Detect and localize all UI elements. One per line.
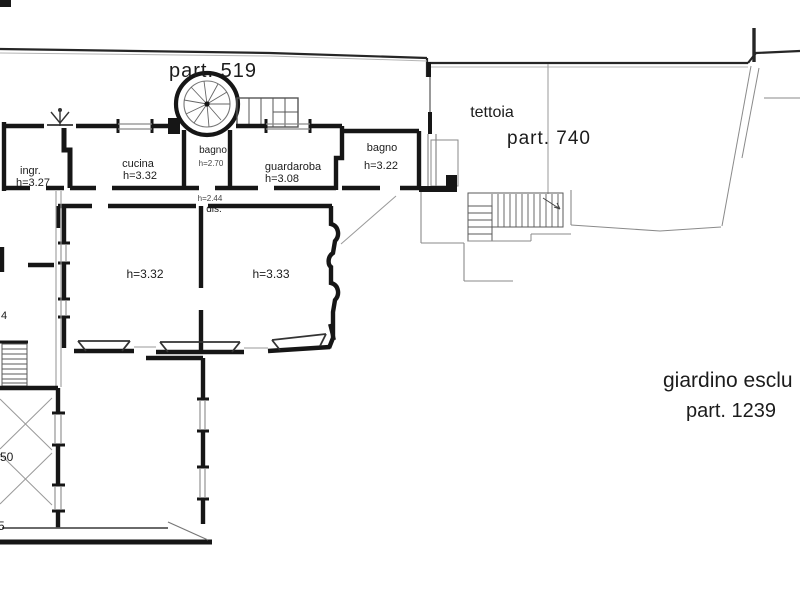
label-cucina: cucina — [122, 158, 155, 170]
apartment-walls-top — [2, 119, 457, 191]
label-ingresso: ingr. — [20, 165, 41, 177]
section-line — [341, 196, 396, 244]
label-parcel-1239: part. 1239 — [686, 400, 776, 422]
label-disimpegno: dis. — [206, 204, 222, 215]
label-parcel-519: part. 519 — [169, 60, 257, 82]
label-guardaroba: guardaroba — [265, 161, 322, 173]
parcel-boundary-line — [0, 28, 800, 77]
garden-boundary — [421, 189, 721, 281]
label-giardino: giardino esclu — [663, 369, 793, 392]
label-edge-5: 5 — [0, 519, 5, 533]
label-ingresso-h: h=3.27 — [16, 177, 50, 189]
label-bagno-scala-h: h=2.70 — [199, 159, 224, 168]
label-guardaroba-h: h=3.08 — [265, 173, 299, 185]
label-cucina-h: h=3.32 — [123, 170, 157, 182]
label-disimpegno-h: h=2.44 — [198, 194, 223, 203]
floor-plan-canvas: part. 519 tettoia part. 740 ingr. h=3.27… — [0, 0, 800, 600]
label-bagno-scala: bagno — [199, 145, 227, 156]
floor-plan-drawing: part. 519 tettoia part. 740 ingr. h=3.27… — [0, 0, 800, 600]
label-camera2-h: h=3.33 — [252, 267, 289, 281]
label-bagno: bagno — [367, 142, 398, 154]
label-parcel-740: part. 740 — [507, 128, 591, 149]
internal-staircase — [0, 342, 28, 386]
gate-symbol — [47, 108, 73, 126]
pillar — [446, 175, 457, 186]
external-staircase — [468, 193, 571, 241]
label-camera1-h: h=3.32 — [126, 267, 163, 281]
corner-mark — [0, 0, 11, 7]
apartment-walls-middle — [58, 206, 338, 352]
apartment-walls-lower — [0, 358, 212, 542]
label-edge-4: 4 — [1, 310, 7, 322]
left-hallway — [2, 191, 61, 387]
label-tettoia: tettoia — [470, 104, 514, 121]
label-edge-50: 50 — [0, 450, 14, 464]
lower-windows — [2, 400, 208, 540]
label-bagno-h: h=3.22 — [364, 160, 398, 172]
driveway-diagonal-lines — [722, 66, 800, 226]
